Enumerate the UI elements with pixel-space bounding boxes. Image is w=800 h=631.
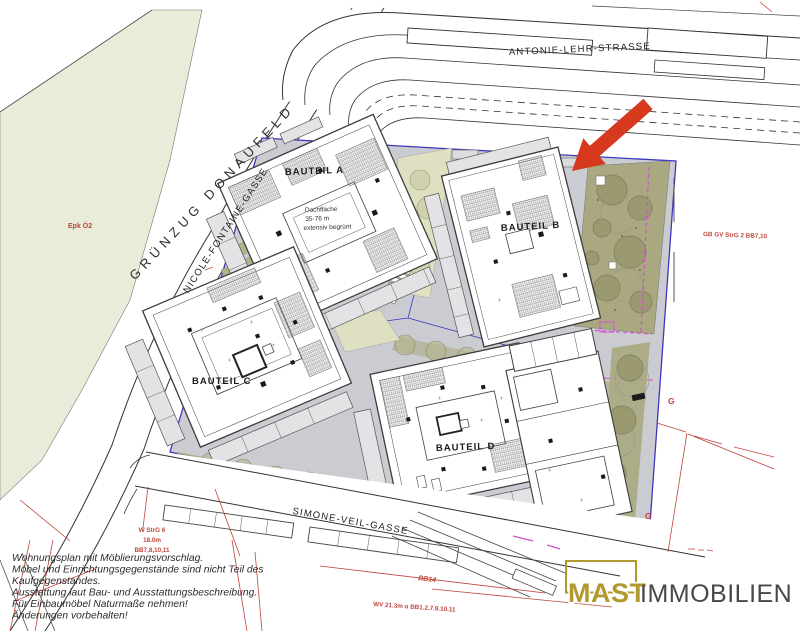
annotation-wstrg: W StrG 6 [139,527,166,534]
svg-text:Dachfläche: Dachfläche [305,206,338,214]
annotation-g-lower: G [645,511,652,521]
notes-line-2: Möbel und Einrichtungsgegenstände sind n… [12,565,264,576]
site-plan-drawing: ANTONIE-LEHR-STRASSE NICOLE-FONTAINE-GAS… [0,0,800,631]
annotation-g-upper: G [668,396,675,406]
annotation-epk: Epk Ö2 [68,221,92,230]
logo-immobilien-text: IMMOBILIEN [640,580,792,608]
notes-line-4: Ausstattung laut Bau- und Ausstattungsbe… [11,588,257,599]
logo-mast-text: MAST [568,578,647,608]
notes-line-5: Für Einbaumöbel Naturmaße nehmen! [12,599,188,610]
bauteil-a-label: BAUTEIL A [285,165,344,178]
svg-text:35-76 m: 35-76 m [305,215,329,223]
bauteil-d-label: BAUTEIL D [436,441,496,454]
site-plan-page: ANTONIE-LEHR-STRASSE NICOLE-FONTAINE-GAS… [0,0,800,631]
notes-line-1: Wohnungsplan mit Möblierungsvorschlag. [12,553,203,564]
annotation-wstrg-height: 18.0m [143,537,161,544]
notes-line-6: Änderungen vorbehalten! [11,610,128,622]
notes-line-3: Kaufgegenstandes. [12,576,101,587]
bauteil-c-label: BAUTEIL C [192,376,252,387]
